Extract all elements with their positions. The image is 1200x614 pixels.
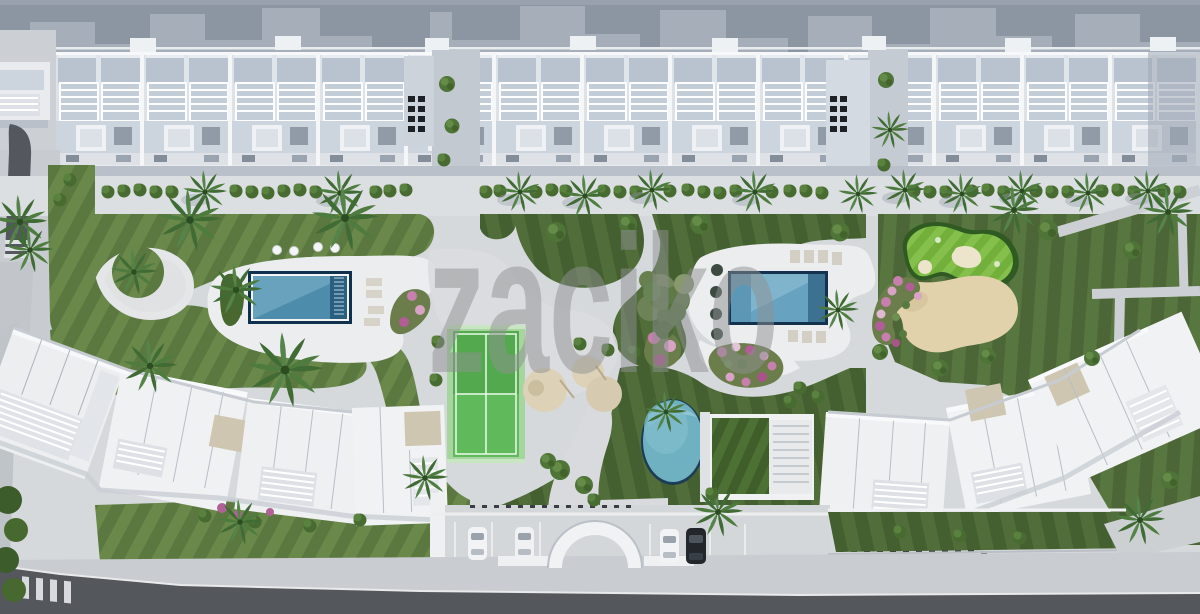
svg-text:zaciko: zaciko	[428, 196, 778, 415]
